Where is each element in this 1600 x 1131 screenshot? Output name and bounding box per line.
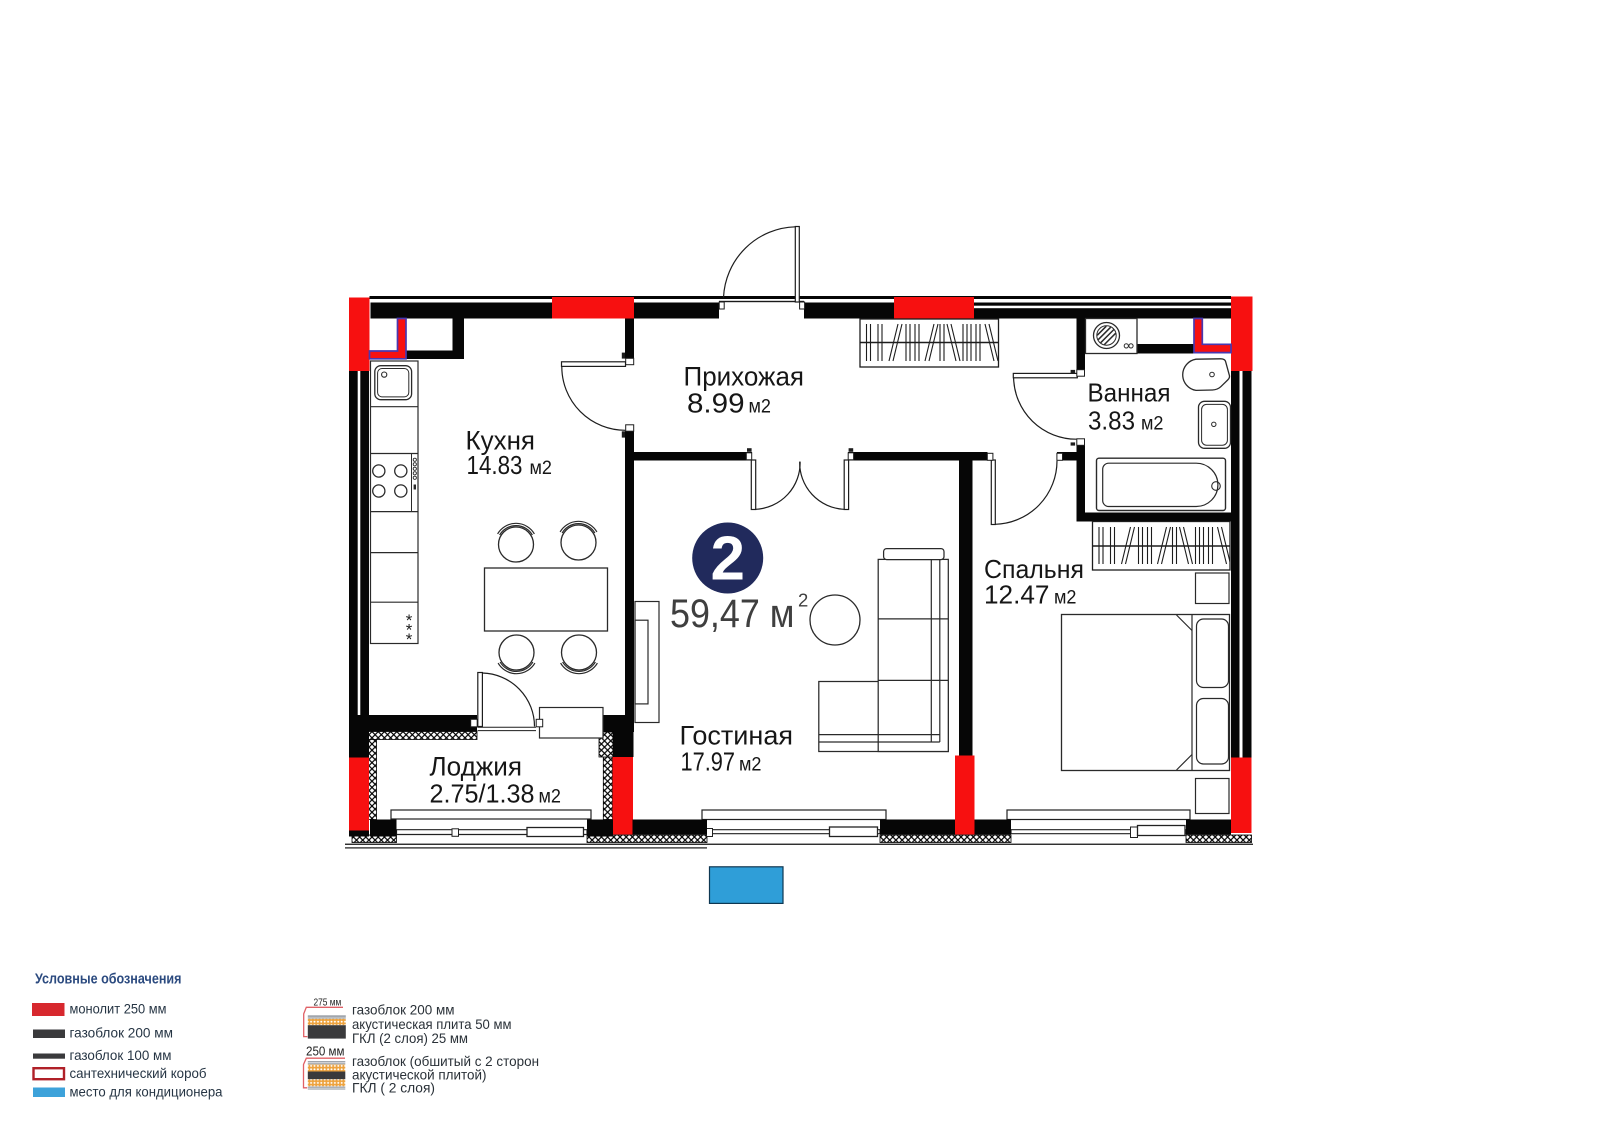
svg-text:сантехнический короб: сантехнический короб: [70, 1065, 207, 1081]
svg-text:8.99: 8.99: [687, 388, 745, 419]
svg-text:м2: м2: [1054, 588, 1077, 609]
svg-text:газоблок 100 мм: газоблок 100 мм: [70, 1047, 172, 1063]
svg-text:*: *: [406, 630, 413, 649]
svg-text:3.83: 3.83: [1088, 406, 1135, 436]
svg-text:2.75/1.38: 2.75/1.38: [430, 779, 535, 809]
svg-text:монолит 250 мм: монолит 250 мм: [70, 1001, 167, 1017]
svg-text:м2: м2: [539, 787, 562, 808]
svg-text:м2: м2: [530, 458, 553, 479]
svg-text:Условные обозначения: Условные обозначения: [35, 972, 182, 988]
svg-text:место для кондиционера: место для кондиционера: [70, 1084, 223, 1100]
svg-text:59,47 м: 59,47 м: [670, 592, 795, 636]
svg-text:14.83: 14.83: [467, 450, 523, 480]
svg-text:2: 2: [798, 590, 808, 611]
svg-text:м2: м2: [739, 755, 762, 776]
svg-text:газоблок 200 мм: газоблок 200 мм: [70, 1025, 174, 1041]
svg-text:12.47: 12.47: [984, 580, 1050, 610]
svg-text:2: 2: [710, 525, 744, 594]
svg-text:ГКЛ (2 слоя) 25 мм: ГКЛ (2 слоя) 25 мм: [352, 1030, 468, 1046]
svg-text:Ванная: Ванная: [1088, 378, 1171, 408]
svg-text:Лоджия: Лоджия: [430, 752, 523, 782]
svg-text:м2: м2: [1141, 414, 1164, 435]
svg-text:м2: м2: [749, 397, 772, 418]
svg-text:250 мм: 250 мм: [306, 1044, 345, 1059]
svg-text:17.97: 17.97: [681, 747, 736, 777]
svg-text:ГКЛ ( 2 слоя): ГКЛ ( 2 слоя): [352, 1080, 435, 1096]
